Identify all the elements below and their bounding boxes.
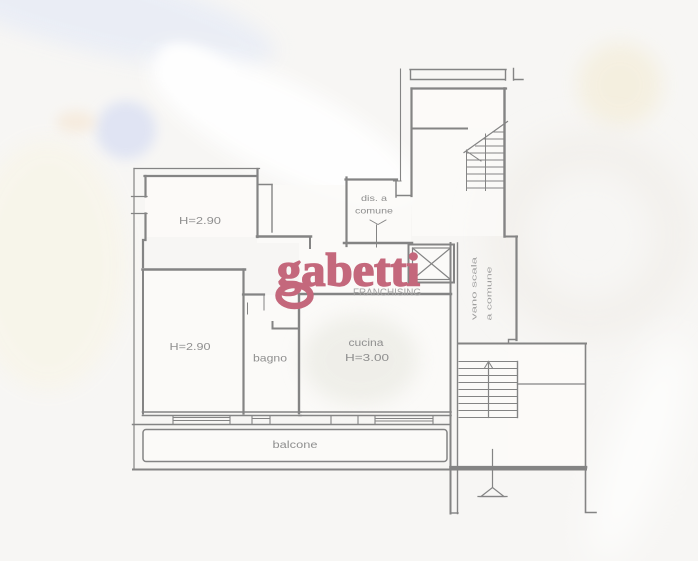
svg-text:H=3.00: H=3.00 bbox=[345, 352, 389, 364]
svg-text:dis. a: dis. a bbox=[361, 193, 387, 203]
svg-text:a comune: a comune bbox=[485, 267, 494, 321]
svg-text:vano scala: vano scala bbox=[470, 256, 479, 320]
svg-text:FRANCHISING: FRANCHISING bbox=[353, 287, 421, 299]
svg-text:bagno: bagno bbox=[253, 353, 287, 365]
svg-text:H=2.90: H=2.90 bbox=[179, 215, 221, 227]
svg-text:balcone: balcone bbox=[273, 440, 319, 451]
svg-text:comune: comune bbox=[355, 206, 393, 216]
svg-text:H=2.90: H=2.90 bbox=[170, 341, 211, 353]
svg-text:cucina: cucina bbox=[349, 338, 385, 349]
